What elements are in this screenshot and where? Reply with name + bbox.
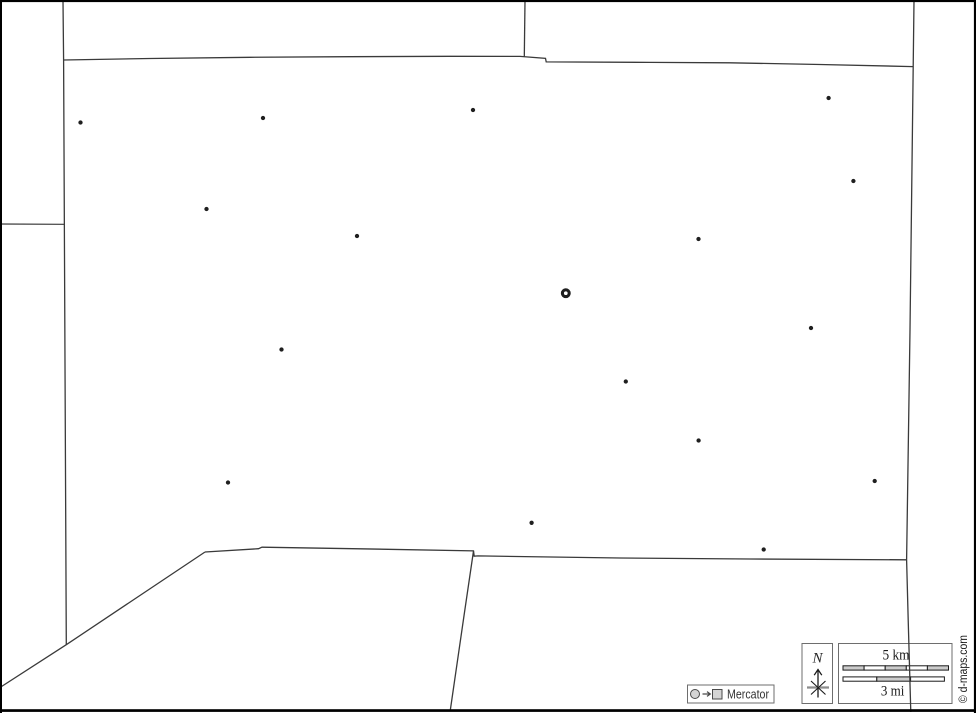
svg-text:Mercator: Mercator <box>727 687 770 702</box>
svg-text:3 mi: 3 mi <box>881 683 905 699</box>
svg-text:N: N <box>811 651 823 667</box>
svg-text:5 km: 5 km <box>883 648 911 664</box>
svg-text:© d-maps.com: © d-maps.com <box>958 635 970 703</box>
